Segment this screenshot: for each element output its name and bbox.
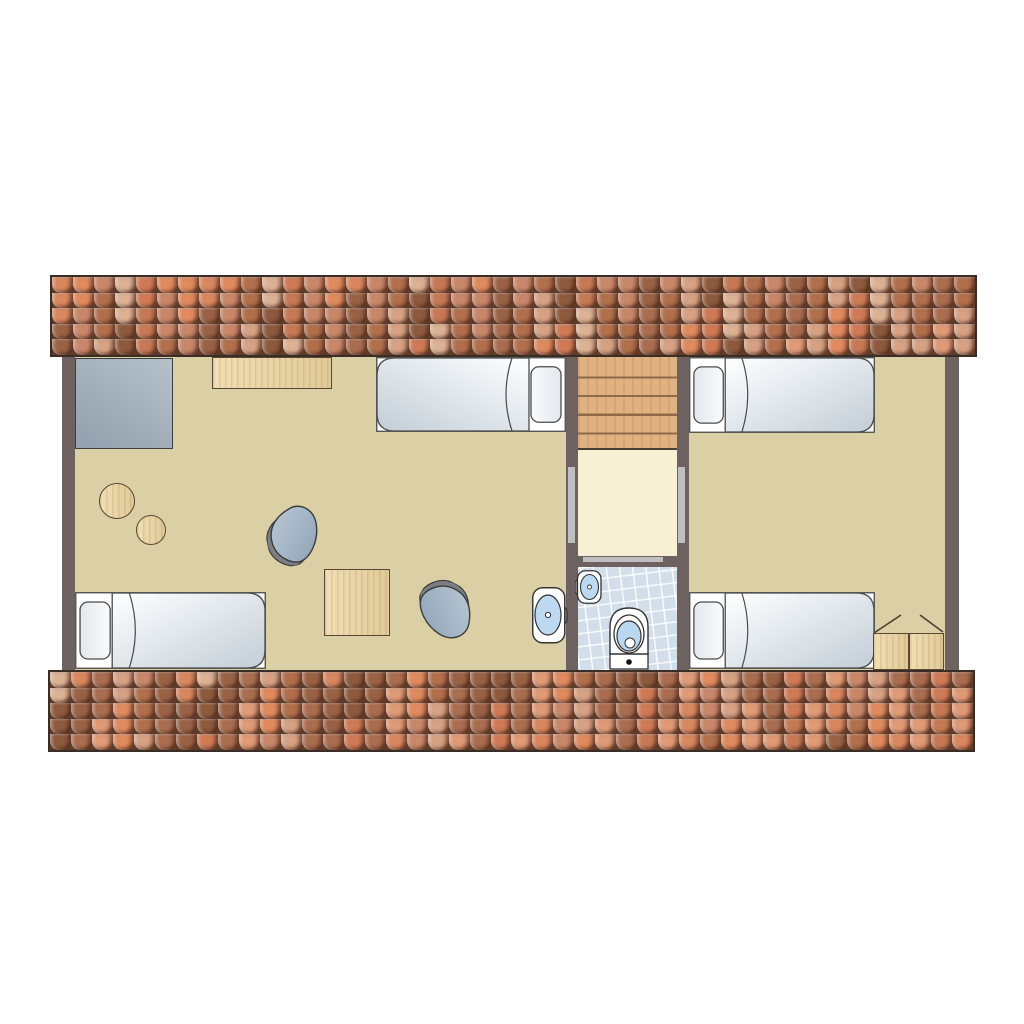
roof-tile: [933, 277, 954, 293]
roof-tile: [637, 719, 658, 735]
roof-tile: [660, 293, 681, 309]
roof-tile: [218, 672, 239, 688]
roof-tile: [304, 324, 325, 340]
roof-tile: [430, 293, 451, 309]
square-table: [324, 569, 390, 636]
roof-tile: [134, 703, 155, 719]
roof-tile: [954, 293, 975, 309]
roof-tile: [910, 703, 931, 719]
roof-tile: [491, 672, 512, 688]
roof-tile: [765, 308, 786, 324]
roof-tile: [197, 703, 218, 719]
door-opening-bathroom: [583, 557, 663, 562]
roof-tile: [367, 324, 388, 340]
roof-tile: [197, 672, 218, 688]
roof-tile: [73, 339, 94, 355]
roof-tile: [283, 293, 304, 309]
roof-tile: [826, 719, 847, 735]
round-stool-small: [136, 515, 166, 545]
roof-tile: [555, 308, 576, 324]
roof-tile: [681, 308, 702, 324]
roof-tile: [574, 734, 595, 750]
roof-tile: [92, 734, 113, 750]
bed-bottom-right: [689, 592, 875, 669]
roof-tile: [113, 719, 134, 735]
roof-tile: [891, 277, 912, 293]
roof-tile: [260, 672, 281, 688]
roof-tile: [178, 324, 199, 340]
roof-tile: [574, 719, 595, 735]
roof-tile: [71, 719, 92, 735]
roof-tile: [868, 703, 889, 719]
roof-tile: [702, 308, 723, 324]
roof-tile: [681, 324, 702, 340]
roof-tile: [870, 277, 891, 293]
roof-tile: [407, 688, 428, 704]
roof-tile: [407, 672, 428, 688]
roof-tile: [597, 324, 618, 340]
roof-tile: [952, 672, 973, 688]
roof-tile: [323, 734, 344, 750]
roof-tile: [576, 277, 597, 293]
roof-tile: [721, 672, 742, 688]
roof-tile: [807, 293, 828, 309]
roof-tile: [534, 339, 555, 355]
roof-tile: [346, 308, 367, 324]
roof-tile: [931, 703, 952, 719]
roof-tile: [409, 308, 430, 324]
roof-tile: [428, 734, 449, 750]
roof-tile: [828, 324, 849, 340]
roof-tile: [679, 703, 700, 719]
roof-tile: [891, 324, 912, 340]
roof-tile: [430, 277, 451, 293]
roof-tile: [828, 339, 849, 355]
roof-tile: [220, 293, 241, 309]
roof-tile: [92, 688, 113, 704]
roof-tile: [952, 703, 973, 719]
roof-tile: [618, 293, 639, 309]
roof-tile: [889, 734, 910, 750]
roof-tile: [849, 277, 870, 293]
roof-tile: [618, 308, 639, 324]
roof-tile: [532, 719, 553, 735]
roof-tile: [616, 734, 637, 750]
roof-tile: [449, 719, 470, 735]
roof-tile: [849, 324, 870, 340]
cabinet-open-door-lines: [873, 614, 944, 634]
roof-tile: [868, 672, 889, 688]
roof-tile: [933, 308, 954, 324]
roof-tile: [954, 339, 975, 355]
roof-tile: [723, 324, 744, 340]
roof-tile: [595, 688, 616, 704]
roof-tile: [702, 293, 723, 309]
roof-tile: [73, 324, 94, 340]
roof-tile: [786, 277, 807, 293]
roof-tile: [239, 734, 260, 750]
roof-tile: [597, 293, 618, 309]
roof-tile: [702, 324, 723, 340]
roof-tile: [197, 688, 218, 704]
roof-tile: [262, 308, 283, 324]
roof-tile: [513, 277, 534, 293]
roof-tile: [807, 277, 828, 293]
roof-tile: [849, 339, 870, 355]
roof-tile: [52, 324, 73, 340]
roof-tile: [744, 324, 765, 340]
roof-tile: [765, 339, 786, 355]
roof-tile: [763, 703, 784, 719]
roof-tile: [304, 293, 325, 309]
door-opening-left-bedroom: [568, 467, 575, 543]
roof-tile: [700, 703, 721, 719]
roof-tile: [534, 277, 555, 293]
roof-tile: [511, 734, 532, 750]
roof-tile: [241, 293, 262, 309]
roof-tile: [472, 293, 493, 309]
roof-tile: [430, 339, 451, 355]
roof-tile: [262, 324, 283, 340]
roof-tile: [931, 719, 952, 735]
roof-tile: [71, 703, 92, 719]
roof-tile: [134, 734, 155, 750]
roof-tile: [807, 339, 828, 355]
roof-tile: [807, 324, 828, 340]
roof-tile: [325, 308, 346, 324]
roof-tile: [344, 719, 365, 735]
roof-tile: [826, 688, 847, 704]
roof-tile: [302, 703, 323, 719]
cabinet-left-door: [873, 633, 909, 670]
roof-tile: [386, 703, 407, 719]
roof-tile: [618, 277, 639, 293]
roof-tile: [115, 339, 136, 355]
roof-tile: [220, 308, 241, 324]
roof-tile: [805, 719, 826, 735]
roof-tile: [449, 672, 470, 688]
roof-tile: [891, 339, 912, 355]
roof-tile: [73, 277, 94, 293]
roof-tile: [136, 277, 157, 293]
roof-tile: [660, 339, 681, 355]
roof-tile: [325, 277, 346, 293]
roof-tile: [870, 339, 891, 355]
roof-tile: [493, 339, 514, 355]
roof-tile: [658, 719, 679, 735]
roof-tile: [94, 293, 115, 309]
roof-tile: [555, 293, 576, 309]
roof-tile: [511, 672, 532, 688]
roof-tile: [889, 688, 910, 704]
roof-tile: [155, 734, 176, 750]
roof-tile: [491, 703, 512, 719]
roof-tile: [576, 339, 597, 355]
roof-tile: [239, 688, 260, 704]
roof-tile: [954, 324, 975, 340]
roof-tile: [847, 734, 868, 750]
roof-tile: [470, 703, 491, 719]
roof-tile: [52, 339, 73, 355]
roof-tile: [407, 703, 428, 719]
roof-tile: [113, 688, 134, 704]
roof-tile: [94, 339, 115, 355]
roof-tile: [302, 734, 323, 750]
roof-tile: [574, 688, 595, 704]
roof-tile: [178, 308, 199, 324]
roof-tile: [534, 308, 555, 324]
roof-tile: [513, 293, 534, 309]
roof-tile: [639, 324, 660, 340]
roof-tile: [910, 719, 931, 735]
roof-tile: [786, 293, 807, 309]
roof-tile: [134, 688, 155, 704]
roof-tile: [828, 308, 849, 324]
roof-tile: [325, 293, 346, 309]
roof-tile: [679, 672, 700, 688]
roof-tile: [283, 277, 304, 293]
roof-tile: [849, 293, 870, 309]
roof-tile: [323, 703, 344, 719]
roof-tile: [553, 734, 574, 750]
roof-tile: [511, 703, 532, 719]
roof-tile: [868, 734, 889, 750]
roof-tile: [92, 719, 113, 735]
roof-tile: [386, 688, 407, 704]
roof-tile: [115, 308, 136, 324]
roof-tile: [451, 293, 472, 309]
roof-tile: [304, 308, 325, 324]
roof-tile: [281, 672, 302, 688]
roof-tile: [430, 308, 451, 324]
roof-tile: [199, 339, 220, 355]
roof-tile: [365, 703, 386, 719]
roof-tile: [220, 277, 241, 293]
roof-tile: [113, 734, 134, 750]
roof-bottom: [48, 670, 975, 752]
roof-tile: [73, 308, 94, 324]
roof-tile: [700, 672, 721, 688]
roof-tile: [742, 719, 763, 735]
roof-tile: [721, 734, 742, 750]
roof-tile: [744, 308, 765, 324]
roof-tile: [115, 293, 136, 309]
round-stool-large: [99, 483, 135, 519]
roof-tile: [553, 703, 574, 719]
roof-tile: [451, 324, 472, 340]
roof-tile: [532, 703, 553, 719]
roof-tile: [92, 703, 113, 719]
roof-tile: [954, 277, 975, 293]
roof-tile: [826, 703, 847, 719]
roof-tile: [281, 734, 302, 750]
roof-tile: [157, 308, 178, 324]
roof-tile: [386, 734, 407, 750]
roof-tile: [136, 308, 157, 324]
roof-tile: [491, 734, 512, 750]
roof-tile: [784, 672, 805, 688]
roof-tile: [260, 734, 281, 750]
roof-tile: [534, 293, 555, 309]
roof-tile: [595, 672, 616, 688]
roof-tile: [178, 293, 199, 309]
roof-tile: [409, 277, 430, 293]
roof-tile: [933, 324, 954, 340]
roof-tile: [302, 688, 323, 704]
roof-tile: [763, 719, 784, 735]
roof-tile: [889, 719, 910, 735]
roof-tile: [388, 308, 409, 324]
roof-tile: [658, 688, 679, 704]
roof-tile: [157, 339, 178, 355]
roof-tile: [388, 277, 409, 293]
roof-tile: [637, 734, 658, 750]
roof-tile: [616, 719, 637, 735]
roof-tile: [763, 688, 784, 704]
wardrobe: [75, 358, 173, 449]
roof-tile: [220, 339, 241, 355]
roof-tile: [637, 703, 658, 719]
outer-wall-right: [945, 357, 959, 670]
roof-tile: [115, 277, 136, 293]
roof-tile: [805, 672, 826, 688]
roof-tile: [365, 734, 386, 750]
roof-tile: [870, 308, 891, 324]
roof-tile: [511, 719, 532, 735]
roof-tile: [262, 277, 283, 293]
roof-tile: [367, 293, 388, 309]
roof-tile: [786, 339, 807, 355]
roof-tile: [199, 324, 220, 340]
roof-tile: [765, 293, 786, 309]
roof-tile: [388, 324, 409, 340]
roof-tile: [555, 277, 576, 293]
roof-tile: [742, 672, 763, 688]
roof-tile: [113, 703, 134, 719]
roof-tile: [283, 308, 304, 324]
roof-tile: [304, 339, 325, 355]
roof-tile: [157, 324, 178, 340]
roof-tile: [407, 734, 428, 750]
roof-tile: [891, 293, 912, 309]
roof-tile: [868, 719, 889, 735]
bed-top-right: [689, 357, 875, 433]
roof-tile: [807, 308, 828, 324]
roof-tile: [470, 719, 491, 735]
roof-tile: [367, 277, 388, 293]
roof-tile: [702, 339, 723, 355]
roof-tile: [281, 719, 302, 735]
roof-tile: [658, 672, 679, 688]
roof-tile: [241, 339, 262, 355]
roof-tile: [595, 703, 616, 719]
roof-tile: [868, 688, 889, 704]
roof-tile: [176, 672, 197, 688]
roof-tile: [470, 688, 491, 704]
roof-tile: [367, 308, 388, 324]
roof-tile: [344, 672, 365, 688]
roof-tile: [428, 672, 449, 688]
roof-tile: [325, 339, 346, 355]
roof-tile: [765, 277, 786, 293]
roof-tile: [115, 324, 136, 340]
roof-tile: [197, 734, 218, 750]
roof-tile: [50, 672, 71, 688]
roof-tile: [765, 324, 786, 340]
roof-tile: [576, 308, 597, 324]
roof-tile: [700, 719, 721, 735]
roof-tile: [73, 293, 94, 309]
roof-tile: [952, 719, 973, 735]
roof-tile: [365, 719, 386, 735]
roof-tile: [302, 719, 323, 735]
roof-tile: [679, 688, 700, 704]
staircase: [578, 357, 677, 450]
roof-tile: [71, 734, 92, 750]
washbasin-bathroom: [575, 570, 602, 604]
roof-tile: [534, 324, 555, 340]
roof-tile: [723, 293, 744, 309]
roof-tile: [553, 719, 574, 735]
roof-tile: [597, 339, 618, 355]
roof-tile: [597, 277, 618, 293]
roof-tile: [721, 703, 742, 719]
roof-tile: [239, 703, 260, 719]
roof-tile: [805, 688, 826, 704]
bed-bottom-left: [75, 592, 266, 669]
roof-tile: [491, 719, 512, 735]
outer-wall-left: [62, 357, 75, 670]
roof-tile: [113, 672, 134, 688]
roof-tile: [344, 703, 365, 719]
roof-tile: [71, 672, 92, 688]
roof-tile: [346, 293, 367, 309]
roof-tile: [218, 719, 239, 735]
roof-tile: [155, 719, 176, 735]
roof-tile: [323, 719, 344, 735]
roof-tile: [491, 688, 512, 704]
roof-tile: [595, 719, 616, 735]
roof-tile: [513, 324, 534, 340]
roof-tile: [826, 734, 847, 750]
roof-tile: [744, 339, 765, 355]
roof-tile: [742, 703, 763, 719]
roof-tile: [511, 688, 532, 704]
roof-tile: [910, 672, 931, 688]
roof-tile: [784, 703, 805, 719]
roof-tile: [574, 703, 595, 719]
roof-tile: [805, 703, 826, 719]
roof-tile: [386, 719, 407, 735]
roof-tile: [239, 672, 260, 688]
roof-tile: [346, 277, 367, 293]
roof-tile: [912, 277, 933, 293]
roof-tile: [679, 734, 700, 750]
roof-tile: [954, 308, 975, 324]
roof-tile: [847, 703, 868, 719]
roof-tile: [470, 672, 491, 688]
roof-tile: [912, 308, 933, 324]
roof-tile: [449, 688, 470, 704]
roof-tile: [723, 277, 744, 293]
roof-tile: [302, 672, 323, 688]
roof-tile: [826, 672, 847, 688]
stair-landing: [578, 450, 677, 556]
roof-tile: [931, 688, 952, 704]
roof-tile: [847, 672, 868, 688]
roof-tile: [931, 734, 952, 750]
roof-tile: [386, 672, 407, 688]
